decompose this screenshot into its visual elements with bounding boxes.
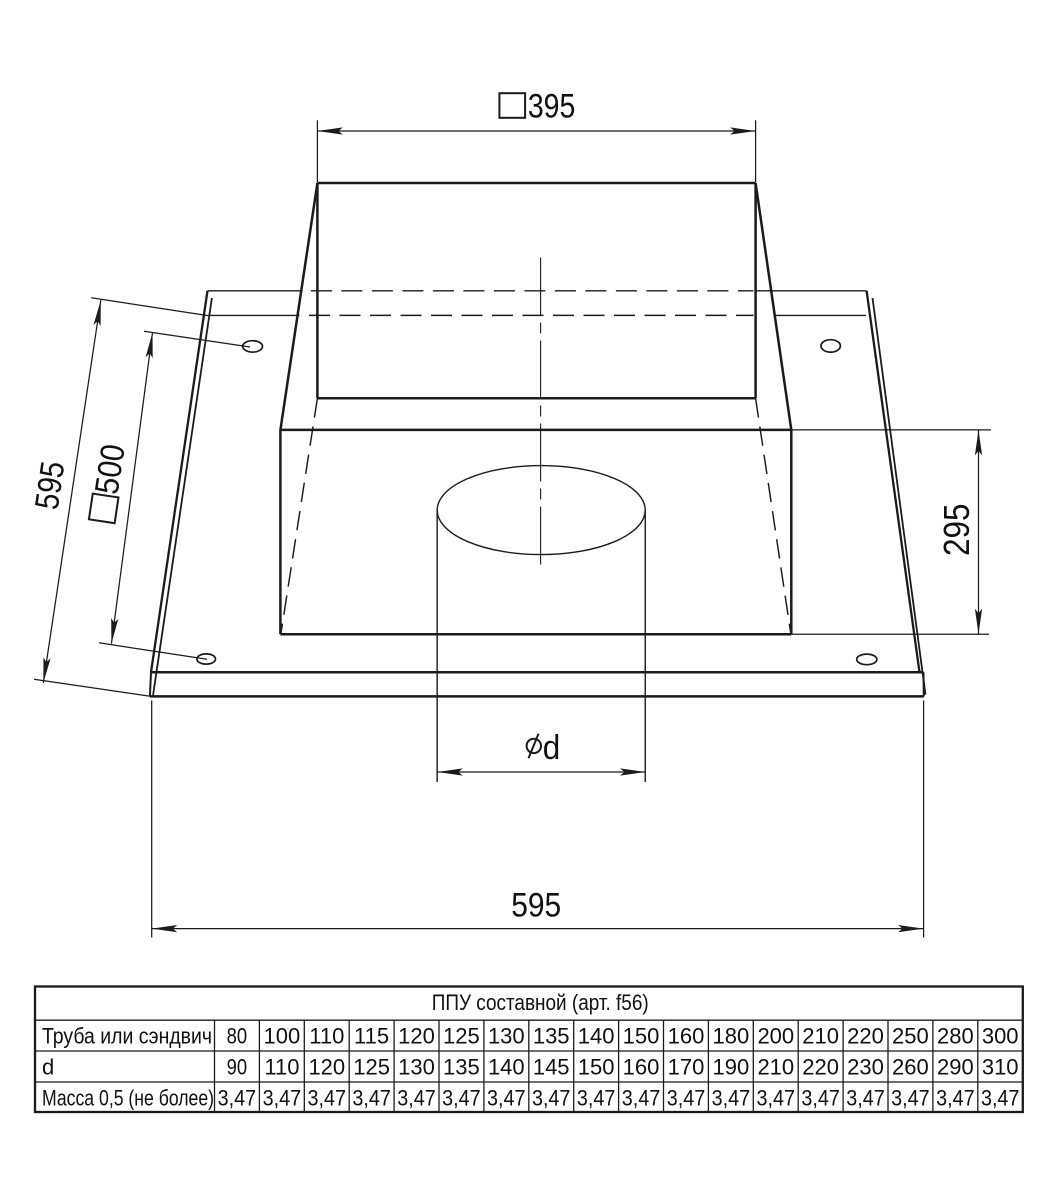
svg-text:Труба или сэндвич: Труба или сэндвич bbox=[42, 1023, 212, 1048]
svg-text:3,47: 3,47 bbox=[218, 1085, 257, 1110]
svg-text:280: 280 bbox=[937, 1023, 974, 1048]
svg-text:110: 110 bbox=[309, 1023, 344, 1048]
svg-text:3,47: 3,47 bbox=[352, 1085, 391, 1110]
svg-text:130: 130 bbox=[488, 1023, 525, 1048]
svg-text:115: 115 bbox=[354, 1023, 389, 1048]
svg-text:3,47: 3,47 bbox=[667, 1085, 706, 1110]
svg-text:290: 290 bbox=[937, 1055, 974, 1080]
svg-text:180: 180 bbox=[713, 1023, 750, 1048]
svg-text:3,47: 3,47 bbox=[712, 1085, 751, 1110]
svg-text:120: 120 bbox=[398, 1023, 435, 1048]
svg-text:3,47: 3,47 bbox=[263, 1085, 302, 1110]
svg-text:125: 125 bbox=[353, 1055, 390, 1080]
svg-text:310: 310 bbox=[982, 1055, 1019, 1080]
svg-text:110: 110 bbox=[264, 1055, 299, 1080]
svg-text:d: d bbox=[42, 1055, 54, 1080]
svg-text:3,47: 3,47 bbox=[757, 1085, 796, 1110]
svg-text:295: 295 bbox=[936, 503, 977, 556]
svg-text:3,47: 3,47 bbox=[622, 1085, 661, 1110]
svg-text:135: 135 bbox=[443, 1055, 480, 1080]
svg-text:Масса 0,5 (не более): Масса 0,5 (не более) bbox=[42, 1085, 214, 1110]
svg-text:3,47: 3,47 bbox=[397, 1085, 436, 1110]
svg-text:130: 130 bbox=[398, 1055, 435, 1080]
svg-text:100: 100 bbox=[264, 1023, 301, 1048]
svg-text:3,47: 3,47 bbox=[442, 1085, 481, 1110]
svg-text:190: 190 bbox=[713, 1055, 750, 1080]
svg-text:210: 210 bbox=[757, 1055, 794, 1080]
svg-text:595: 595 bbox=[511, 886, 561, 924]
svg-text:3,47: 3,47 bbox=[801, 1085, 840, 1110]
svg-text:150: 150 bbox=[578, 1055, 615, 1080]
svg-text:120: 120 bbox=[308, 1055, 345, 1080]
svg-text:3,47: 3,47 bbox=[981, 1085, 1020, 1110]
svg-text:ППУ составной (арт. f56): ППУ составной (арт. f56) bbox=[432, 990, 649, 1015]
svg-text:160: 160 bbox=[623, 1055, 660, 1080]
svg-text:500: 500 bbox=[89, 442, 133, 497]
svg-text:3,47: 3,47 bbox=[577, 1085, 616, 1110]
svg-text:3,47: 3,47 bbox=[846, 1085, 885, 1110]
svg-text:595: 595 bbox=[29, 459, 73, 512]
svg-text:150: 150 bbox=[623, 1023, 660, 1048]
svg-text:250: 250 bbox=[892, 1023, 929, 1048]
svg-text:160: 160 bbox=[668, 1023, 705, 1048]
svg-text:80: 80 bbox=[227, 1023, 248, 1048]
svg-text:220: 220 bbox=[847, 1023, 884, 1048]
svg-text:3,47: 3,47 bbox=[487, 1085, 526, 1110]
svg-text:135: 135 bbox=[533, 1023, 570, 1048]
svg-text:300: 300 bbox=[982, 1023, 1019, 1048]
svg-text:3,47: 3,47 bbox=[308, 1085, 347, 1110]
svg-text:90: 90 bbox=[227, 1055, 248, 1080]
svg-text:395: 395 bbox=[528, 87, 576, 125]
svg-text:3,47: 3,47 bbox=[936, 1085, 975, 1110]
svg-text:145: 145 bbox=[533, 1055, 570, 1080]
svg-text:210: 210 bbox=[802, 1023, 839, 1048]
svg-text:125: 125 bbox=[443, 1023, 480, 1048]
svg-text:3,47: 3,47 bbox=[532, 1085, 571, 1110]
svg-text:140: 140 bbox=[488, 1055, 525, 1080]
svg-text:140: 140 bbox=[578, 1023, 615, 1048]
svg-text:200: 200 bbox=[757, 1023, 794, 1048]
svg-text:230: 230 bbox=[847, 1055, 884, 1080]
svg-text:170: 170 bbox=[668, 1055, 705, 1080]
svg-text:260: 260 bbox=[892, 1055, 929, 1080]
svg-text:220: 220 bbox=[802, 1055, 839, 1080]
svg-text:3,47: 3,47 bbox=[891, 1085, 930, 1110]
svg-text:d: d bbox=[543, 729, 561, 767]
